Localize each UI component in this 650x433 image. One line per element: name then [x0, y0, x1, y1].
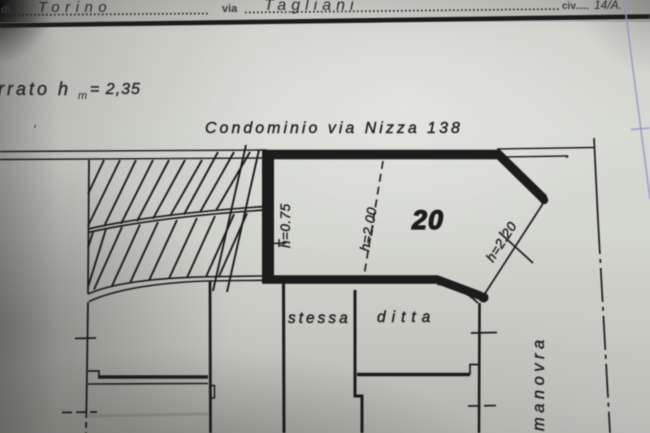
svg-text:h=2.00: h=2.00: [357, 206, 380, 253]
svg-text:m: m: [78, 90, 87, 102]
svg-text:di: di: [1, 4, 11, 16]
svg-text:civ.....: civ.....: [562, 1, 589, 12]
svg-text:= 2,35: = 2,35: [90, 81, 141, 98]
svg-text:rrato h: rrato h: [0, 79, 71, 99]
svg-text:h=0.75: h=0.75: [278, 203, 293, 248]
svg-text:h=2.20: h=2.20: [483, 219, 520, 265]
svg-text:Condominio via Nizza 138: Condominio via Nizza 138: [205, 120, 463, 137]
svg-text:stessa: stessa: [288, 310, 351, 327]
svg-text:20: 20: [411, 205, 444, 235]
svg-text:Tagliani: Tagliani: [264, 0, 359, 14]
svg-text:manovra: manovra: [530, 335, 548, 431]
svg-text:Torino: Torino: [38, 0, 112, 16]
svg-text:ditta: ditta: [377, 309, 436, 326]
svg-text:14/A.: 14/A.: [594, 0, 622, 12]
svg-text:via: via: [222, 3, 238, 15]
svg-text:': ': [33, 122, 36, 137]
